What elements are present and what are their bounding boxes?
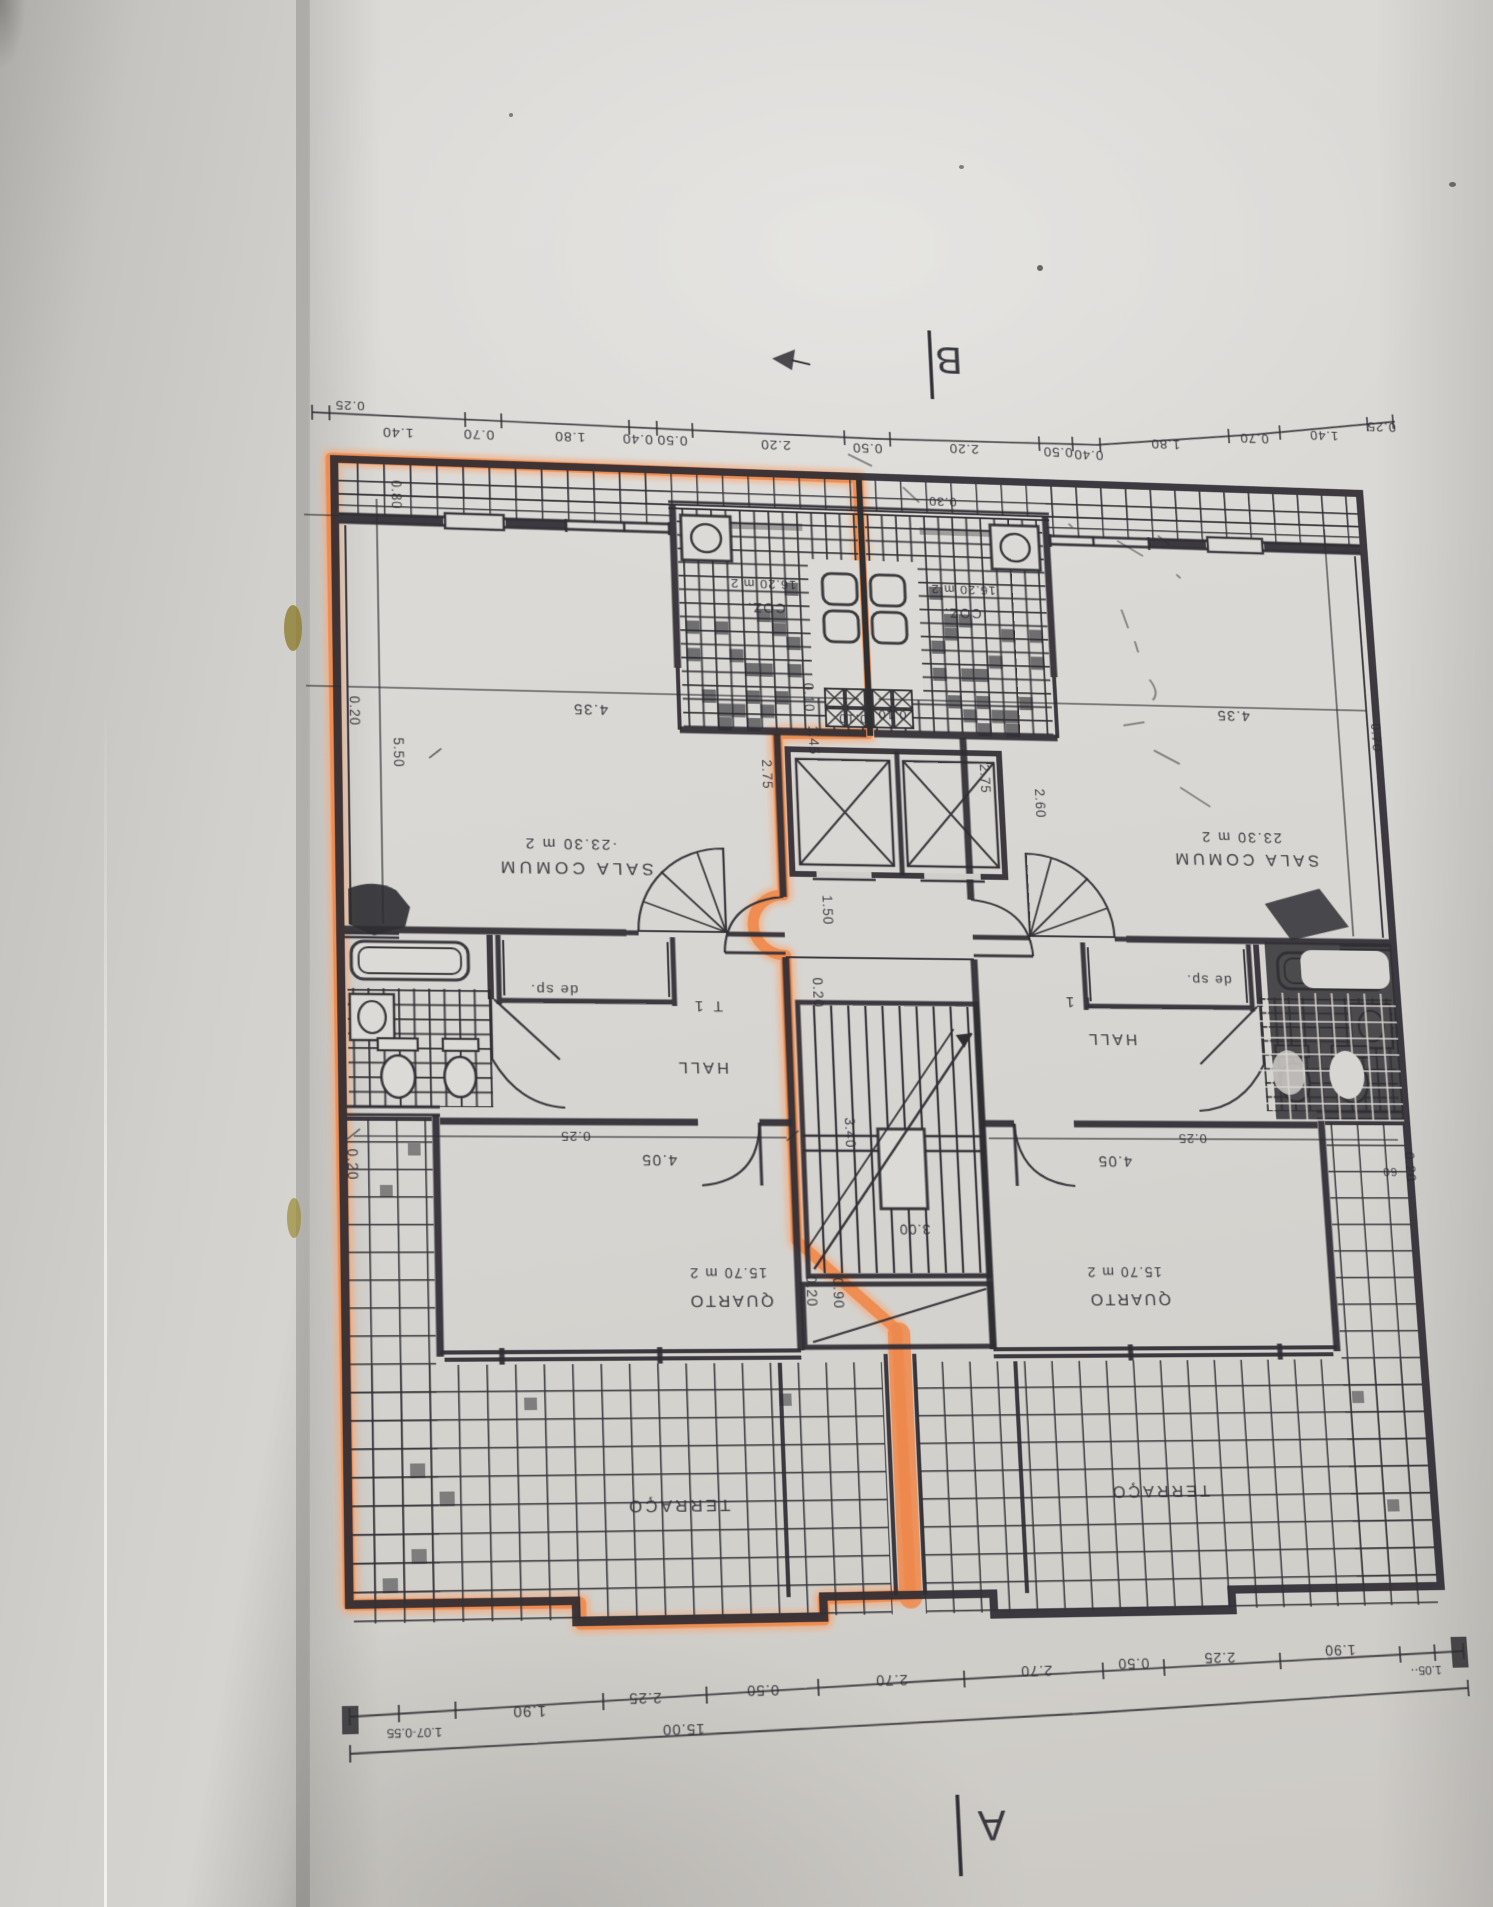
svg-text:1.45: 1.45 [805,725,822,755]
svg-text:1.40: 1.40 [382,425,414,441]
svg-text:0.20: 0.20 [803,1276,820,1308]
svg-text:4.35: 4.35 [572,700,608,717]
svg-text:23.30 m 2: 23.30 m 2 [1200,828,1282,845]
svg-text:de sp.: de sp. [1185,972,1232,987]
svg-text:2.25: 2.25 [1203,1649,1236,1666]
svg-text:15.70 m 2: 15.70 m 2 [688,1265,767,1281]
svg-text:0.50: 0.50 [746,1682,780,1699]
svg-text:1.80: 1.80 [554,429,586,444]
svg-text:0.25: 0.25 [1366,420,1396,435]
svg-text:60: 60 [1382,1165,1398,1178]
svg-text:0.25: 0.25 [1177,1131,1207,1145]
svg-text:1.90: 1.90 [1324,1642,1356,1659]
svg-text:2.75: 2.75 [759,759,776,789]
svg-text:TERRAÇO: TERRAÇO [1109,1481,1210,1500]
svg-text:0.30: 0.30 [928,494,957,508]
svg-text:2.60: 2.60 [1032,789,1049,819]
svg-text:3.40: 3.40 [842,1117,859,1148]
svg-text:0.70: 0.70 [1368,723,1385,752]
svg-text:15.00: 15.00 [662,1721,705,1739]
svg-text:1.40: 1.40 [1309,428,1339,443]
svg-text:2.25: 2.25 [628,1690,662,1707]
svg-text:4.05: 4.05 [641,1151,678,1168]
svg-text:4.05: 4.05 [1097,1152,1133,1168]
svg-text:0.10: 0.10 [838,711,868,725]
svg-text:0.25: 0.25 [335,398,365,413]
svg-text:0.20: 0.20 [810,977,827,1008]
svg-text:0.40: 0.40 [1073,447,1104,462]
svg-text:2.75: 2.75 [977,764,994,794]
svg-text:SALA COMUM: SALA COMUM [496,857,653,878]
svg-text:4.35: 4.35 [1216,707,1251,723]
svg-text:1.05··: 1.05·· [1410,1663,1442,1677]
svg-text:A: A [977,1801,1007,1849]
svg-text:0.70: 0.70 [463,427,495,442]
svg-text:0.90: 0.90 [830,1277,847,1309]
svg-text:QUARTO: QUARTO [1088,1290,1172,1308]
svg-text:de sp.: de sp. [529,982,578,998]
svg-text:0.50: 0.50 [1042,445,1073,460]
svg-text:B: B [934,338,963,382]
svg-text:1.80: 1.80 [1150,437,1180,452]
svg-text:·23.30 m 2: ·23.30 m 2 [523,834,617,852]
svg-text:T 1: T 1 [692,997,724,1014]
svg-text:0.40: 0.40 [622,432,653,447]
svg-text:5.50: 5.50 [391,737,407,768]
svg-text:0.20: 0.20 [1402,1152,1419,1182]
svg-text:0.20: 0.20 [344,1149,361,1181]
svg-text:2.70: 2.70 [875,1672,908,1689]
svg-text:16.20 m 2: 16.20 m 2 [730,576,797,591]
svg-text:1.50: 1.50 [819,895,836,925]
svg-text:HALL: HALL [1085,1030,1137,1047]
svg-text:0.10: 0.10 [877,708,907,722]
svg-text:0.20: 0.20 [346,696,362,727]
svg-text:SALA COMUM: SALA COMUM [1171,849,1320,869]
svg-text:0.50: 0.50 [852,441,883,456]
svg-text:QUARTO: QUARTO [688,1291,774,1309]
svg-text:COZ.: COZ. [746,600,786,616]
svg-text:3.00: 3.00 [898,1222,930,1237]
svg-text:T 1: T 1 [1063,993,1094,1009]
svg-text:HALL: HALL [675,1058,729,1076]
svg-text:1.07·0.55: 1.07·0.55 [387,1724,443,1740]
svg-text:2.20: 2.20 [948,441,979,456]
svg-text:0.50: 0.50 [1117,1655,1150,1672]
svg-text:15.70 m 2: 15.70 m 2 [1086,1264,1162,1280]
svg-text:COZ.: COZ. [943,605,982,620]
svg-text:1.90: 1.90 [512,1703,546,1720]
svg-text:0.80: 0.80 [388,480,404,510]
svg-text:TERRAÇO: TERRAÇO [626,1495,731,1515]
svg-text:0.25: 0.25 [560,1129,591,1144]
svg-text:0.50: 0.50 [656,433,687,448]
svg-text:0.70: 0.70 [1239,431,1269,446]
svg-text:2.20: 2.20 [760,437,791,452]
svg-text:2.70: 2.70 [1020,1662,1053,1679]
svg-text:16.20 m 2: 16.20 m 2 [930,582,996,597]
